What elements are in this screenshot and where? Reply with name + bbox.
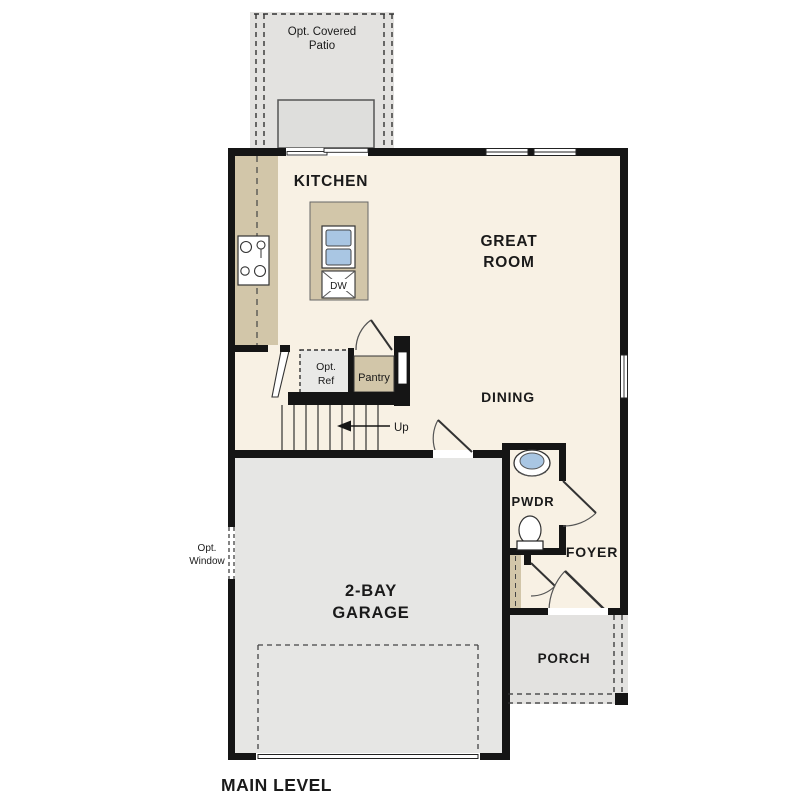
great-room-window-1	[486, 149, 528, 156]
patio-pad	[278, 100, 374, 148]
stair-wall	[288, 392, 410, 405]
dining-label: DINING	[481, 389, 535, 405]
garage-right-wall	[502, 450, 510, 760]
front-door-opening	[548, 608, 608, 615]
pantry-label: Pantry	[358, 372, 390, 384]
coat-closet	[510, 555, 521, 608]
sink-basin-1	[326, 230, 351, 246]
opt-ref-label-line1: Opt.	[316, 361, 336, 373]
opt-ref-label-line2: Ref	[318, 375, 334, 387]
pwdr-toilet	[517, 516, 543, 550]
garage-door	[256, 753, 480, 760]
dishwasher: DW	[322, 271, 355, 298]
porch-column	[615, 693, 628, 705]
pwdr-top-wall	[502, 443, 566, 450]
kitchen-label: KITCHEN	[294, 173, 369, 190]
opt-window-label-line2: Window	[189, 556, 225, 567]
porch-label: PORCH	[538, 651, 591, 666]
patio-label-line2: Patio	[309, 40, 335, 52]
floor-plan-drawing: Opt. Covered Patio	[0, 0, 810, 810]
floor-plan-page: Opt. Covered Patio	[0, 0, 810, 810]
main-living-floor	[232, 152, 624, 452]
pwdr-right-wall-upper	[559, 443, 566, 481]
garage-label-line1: 2-BAY	[345, 582, 397, 600]
kitchen-island: DW	[310, 202, 368, 300]
opt-window-label-line1: Opt.	[198, 543, 217, 554]
cooktop	[238, 236, 269, 285]
great-room-label-line2: ROOM	[483, 254, 534, 271]
garage-label-line2: GARAGE	[332, 604, 409, 622]
kitchen-hall-wall	[235, 345, 268, 352]
pantry-left-wall	[348, 348, 354, 392]
pwdr-sink	[514, 450, 550, 476]
closet-wall-stub	[524, 555, 531, 565]
opt-garage-window: Opt. Window	[189, 527, 235, 579]
dw-label: DW	[330, 281, 347, 292]
pantry-wall-niche	[398, 352, 407, 384]
great-room-window-2	[534, 149, 576, 156]
sliding-patio-door	[286, 148, 368, 156]
covered-patio: Opt. Covered Patio	[250, 12, 394, 149]
up-label: Up	[394, 422, 409, 434]
pwdr-label: PWDR	[512, 494, 555, 509]
dining-window	[621, 355, 628, 398]
great-room-label-line1: GREAT	[480, 233, 537, 250]
sink-basin-2	[326, 249, 351, 265]
patio-label-line1: Opt. Covered	[288, 26, 356, 38]
foyer-label: FOYER	[566, 544, 618, 560]
plan-title: MAIN LEVEL	[221, 775, 332, 795]
